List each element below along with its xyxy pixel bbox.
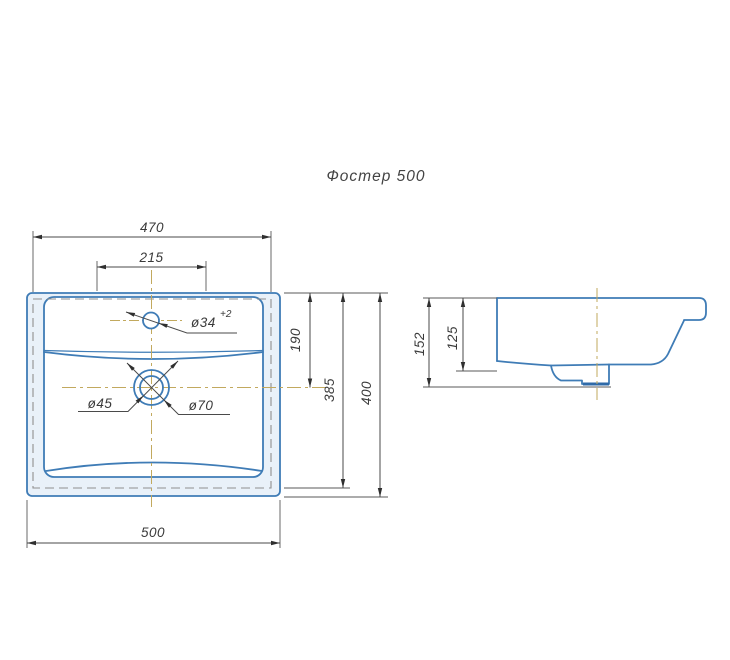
- top-width-label: 470: [140, 220, 164, 235]
- arrowhead: [271, 541, 280, 545]
- bottom-width-dimension: 500: [27, 500, 280, 548]
- arrowhead: [378, 488, 382, 497]
- side-view: 152 125: [412, 288, 706, 400]
- tap-hole-tolerance-label: +2: [220, 309, 232, 320]
- arrowhead: [308, 293, 312, 302]
- side-bottom-slope: [497, 361, 609, 366]
- arrowhead: [33, 235, 42, 239]
- arrowhead: [27, 541, 36, 545]
- arrowhead: [461, 298, 465, 307]
- arrowhead: [461, 362, 465, 371]
- inner-depth-label: 385: [322, 378, 337, 402]
- bowl-height-label: 125: [445, 326, 460, 350]
- side-front-apron: [609, 321, 684, 365]
- top-view: ø34 +2 ø45 ø70 470: [27, 220, 388, 548]
- total-depth-label: 400: [359, 381, 374, 405]
- side-rim-profile: [497, 298, 706, 320]
- arrowhead: [427, 298, 431, 307]
- bottom-width-label: 500: [141, 525, 165, 540]
- side-drain-trap: [551, 365, 609, 385]
- arrowhead: [378, 293, 382, 302]
- total-height-label: 152: [412, 332, 427, 356]
- arrowhead: [341, 479, 345, 488]
- technical-drawing-sheet: ø34 +2 ø45 ø70 470: [0, 0, 730, 660]
- arrowhead: [308, 379, 312, 388]
- tap-hole-diameter-label: ø34: [191, 315, 216, 330]
- side-dimensions: 152 125: [412, 298, 611, 387]
- arrowhead: [427, 378, 431, 387]
- sink-drawing-canvas: ø34 +2 ø45 ø70 470: [0, 0, 730, 660]
- tap-span-label: 215: [138, 250, 163, 265]
- drain-outer-diameter-label: ø70: [189, 398, 214, 413]
- arrowhead: [262, 235, 271, 239]
- arrowhead: [97, 265, 106, 269]
- drawing-title: Фостер 500: [326, 168, 425, 185]
- arrowhead: [197, 265, 206, 269]
- drain-offset-label: 190: [288, 328, 303, 352]
- arrowhead: [341, 293, 345, 302]
- drain-inner-diameter-label: ø45: [88, 396, 113, 411]
- right-dimensions: 190 385 400: [284, 293, 388, 497]
